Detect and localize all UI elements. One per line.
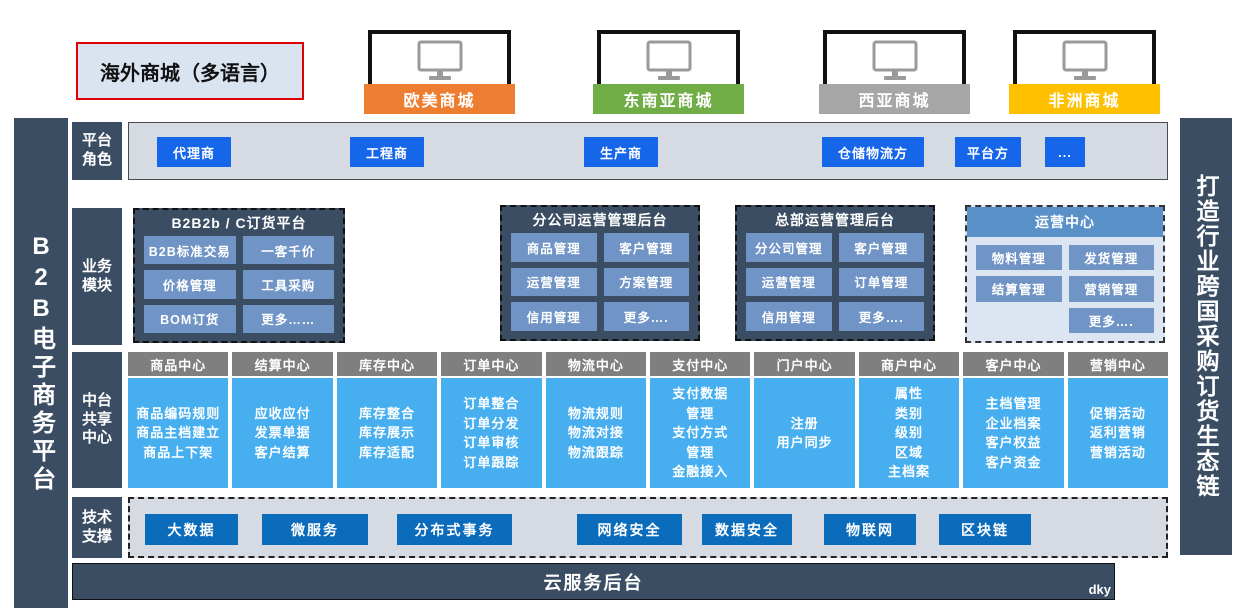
module-item[interactable]: 商品管理 [511, 233, 597, 262]
module-item[interactable]: 方案管理 [604, 268, 690, 297]
row-label-mid-platform: 中台 共享 中心 [72, 352, 122, 488]
center-title: 商户中心 [859, 352, 959, 376]
center-column-settlement: 结算中心 应收应付 发票单据 客户结算 [232, 352, 332, 488]
module-item[interactable]: 订单管理 [839, 268, 925, 297]
module-item[interactable]: 信用管理 [511, 302, 597, 331]
module-box-title: 分公司运营管理后台 [511, 207, 689, 233]
module-item[interactable]: 工具采购 [243, 270, 335, 298]
module-item[interactable]: BOM订货 [144, 305, 236, 333]
center-items[interactable]: 促销活动 返利营销 营销活动 [1068, 378, 1168, 488]
module-item[interactable]: 结算管理 [976, 276, 1062, 301]
center-items[interactable]: 应收应付 发票单据 客户结算 [232, 378, 332, 488]
module-box-ordering-platform: B2B2b / C订货平台 B2B标准交易 一客千价 价格管理 工具采购 BOM… [133, 208, 345, 343]
mall-terminal-africa: 非洲商城 [1013, 30, 1156, 114]
module-item[interactable]: 更多…. [839, 302, 925, 331]
module-item[interactable]: 更多…. [604, 302, 690, 331]
left-title-bar: B2B电子商务平台 [14, 118, 68, 608]
mall-terminal-eu-us: 欧美商城 [368, 30, 511, 114]
overseas-mall-callout: 海外商城（多语言） [76, 42, 304, 100]
module-item[interactable]: 一客千价 [243, 236, 335, 264]
center-items[interactable]: 库存整合 库存展示 库存适配 [337, 378, 437, 488]
center-title: 结算中心 [232, 352, 332, 376]
row-label-tech-support: 技术 支撑 [72, 497, 122, 558]
platform-roles-panel: 代理商 工程商 生产商 仓储物流方 平台方 ... [128, 122, 1168, 180]
module-item[interactable]: 发货管理 [1069, 245, 1155, 270]
center-column-order: 订单中心 订单整合 订单分发 订单审核 订单跟踪 [441, 352, 541, 488]
center-items[interactable]: 商品编码规则 商品主档建立 商品上下架 [128, 378, 228, 488]
b2b-platform-architecture-diagram: B2B电子商务平台 打造行业跨国采购订货生态链 海外商城（多语言） 欧美商城 东… [0, 0, 1237, 611]
center-items[interactable]: 订单整合 订单分发 订单审核 订单跟踪 [441, 378, 541, 488]
module-box-title: 总部运营管理后台 [746, 207, 924, 233]
module-box-title: B2B2b / C订货平台 [144, 210, 334, 236]
mall-label: 东南亚商城 [593, 84, 744, 114]
center-title: 物流中心 [546, 352, 646, 376]
center-column-customer: 客户中心 主档管理 企业档案 客户权益 客户资金 [963, 352, 1063, 488]
module-item[interactable]: 价格管理 [144, 270, 236, 298]
module-item[interactable]: 物料管理 [976, 245, 1062, 270]
center-column-portal: 门户中心 注册 用户同步 [754, 352, 854, 488]
role-button-producer[interactable]: 生产商 [584, 137, 658, 167]
module-box-branch-admin: 分公司运营管理后台 商品管理 客户管理 运营管理 方案管理 信用管理 更多…. [500, 205, 700, 341]
row-label-platform-roles: 平台 角色 [72, 122, 122, 180]
tech-button-iot[interactable]: 物联网 [824, 514, 916, 545]
module-grid: 物料管理 发货管理 结算管理 营销管理 更多…. [967, 237, 1163, 341]
mall-label: 非洲商城 [1009, 84, 1160, 114]
tech-button-distributed-tx[interactable]: 分布式事务 [397, 514, 512, 545]
center-title: 订单中心 [441, 352, 541, 376]
center-title: 库存中心 [337, 352, 437, 376]
role-button-more[interactable]: ... [1045, 137, 1085, 167]
center-title: 客户中心 [963, 352, 1063, 376]
tech-button-big-data[interactable]: 大数据 [145, 514, 238, 545]
watermark-text: dky [1089, 582, 1111, 597]
monitor-icon [823, 30, 966, 92]
center-column-payment: 支付中心 支付数据 管理 支付方式 管理 金融接入 [650, 352, 750, 488]
mall-label: 欧美商城 [364, 84, 515, 114]
center-items[interactable]: 属性 类别 级别 区域 主档案 [859, 378, 959, 488]
module-item[interactable]: 客户管理 [604, 233, 690, 262]
tech-button-network-security[interactable]: 网络安全 [577, 514, 682, 545]
cloud-backend-bar: 云服务后台 dky [72, 563, 1115, 600]
cloud-backend-label: 云服务后台 [544, 569, 644, 595]
module-item[interactable]: 运营管理 [511, 268, 597, 297]
center-title: 支付中心 [650, 352, 750, 376]
center-items[interactable]: 支付数据 管理 支付方式 管理 金融接入 [650, 378, 750, 488]
module-item[interactable]: 营销管理 [1069, 276, 1155, 301]
module-grid-spacer [976, 308, 1062, 333]
tech-button-blockchain[interactable]: 区块链 [939, 514, 1031, 545]
business-modules-row: B2B2b / C订货平台 B2B标准交易 一客千价 价格管理 工具采购 BOM… [128, 205, 1168, 345]
module-item[interactable]: 更多…… [243, 305, 335, 333]
role-button-engineering[interactable]: 工程商 [350, 137, 424, 167]
mid-platform-centers-row: 商品中心 商品编码规则 商品主档建立 商品上下架 结算中心 应收应付 发票单据 … [128, 352, 1168, 488]
right-slogan-bar: 打造行业跨国采购订货生态链 [1180, 118, 1232, 555]
module-box-hq-admin: 总部运营管理后台 分公司管理 客户管理 运营管理 订单管理 信用管理 更多…. [735, 205, 935, 341]
module-item[interactable]: 分公司管理 [746, 233, 832, 262]
module-grid: 分公司管理 客户管理 运营管理 订单管理 信用管理 更多…. [746, 233, 924, 331]
tech-support-panel: 大数据 微服务 分布式事务 网络安全 数据安全 物联网 区块链 [128, 497, 1168, 558]
module-grid: B2B标准交易 一客千价 价格管理 工具采购 BOM订货 更多…… [144, 236, 334, 333]
module-item[interactable]: 运营管理 [746, 268, 832, 297]
center-column-inventory: 库存中心 库存整合 库存展示 库存适配 [337, 352, 437, 488]
monitor-icon [368, 30, 511, 92]
module-item[interactable]: 信用管理 [746, 302, 832, 331]
module-box-title: 运营中心 [967, 207, 1163, 237]
module-box-operations-center: 运营中心 物料管理 发货管理 结算管理 营销管理 更多…. [965, 205, 1165, 343]
center-title: 商品中心 [128, 352, 228, 376]
mall-terminal-sea: 东南亚商城 [597, 30, 740, 114]
module-item[interactable]: 客户管理 [839, 233, 925, 262]
monitor-icon [597, 30, 740, 92]
role-button-warehouse-logistics[interactable]: 仓储物流方 [822, 137, 924, 167]
tech-button-microservices[interactable]: 微服务 [262, 514, 368, 545]
mall-terminal-west-asia: 西亚商城 [823, 30, 966, 114]
role-button-platform[interactable]: 平台方 [955, 137, 1021, 167]
center-items[interactable]: 物流规则 物流对接 物流跟踪 [546, 378, 646, 488]
center-items[interactable]: 注册 用户同步 [754, 378, 854, 488]
mall-label: 西亚商城 [819, 84, 970, 114]
monitor-icon [1013, 30, 1156, 92]
center-items[interactable]: 主档管理 企业档案 客户权益 客户资金 [963, 378, 1063, 488]
center-column-logistics: 物流中心 物流规则 物流对接 物流跟踪 [546, 352, 646, 488]
module-item[interactable]: B2B标准交易 [144, 236, 236, 264]
center-title: 门户中心 [754, 352, 854, 376]
center-column-marketing: 营销中心 促销活动 返利营销 营销活动 [1068, 352, 1168, 488]
center-title: 营销中心 [1068, 352, 1168, 376]
center-column-merchant: 商户中心 属性 类别 级别 区域 主档案 [859, 352, 959, 488]
role-button-agent[interactable]: 代理商 [157, 137, 231, 167]
module-grid: 商品管理 客户管理 运营管理 方案管理 信用管理 更多…. [511, 233, 689, 331]
module-item[interactable]: 更多…. [1069, 308, 1155, 333]
center-column-product: 商品中心 商品编码规则 商品主档建立 商品上下架 [128, 352, 228, 488]
row-label-business-modules: 业务 模块 [72, 208, 122, 345]
tech-button-data-security[interactable]: 数据安全 [702, 514, 792, 545]
